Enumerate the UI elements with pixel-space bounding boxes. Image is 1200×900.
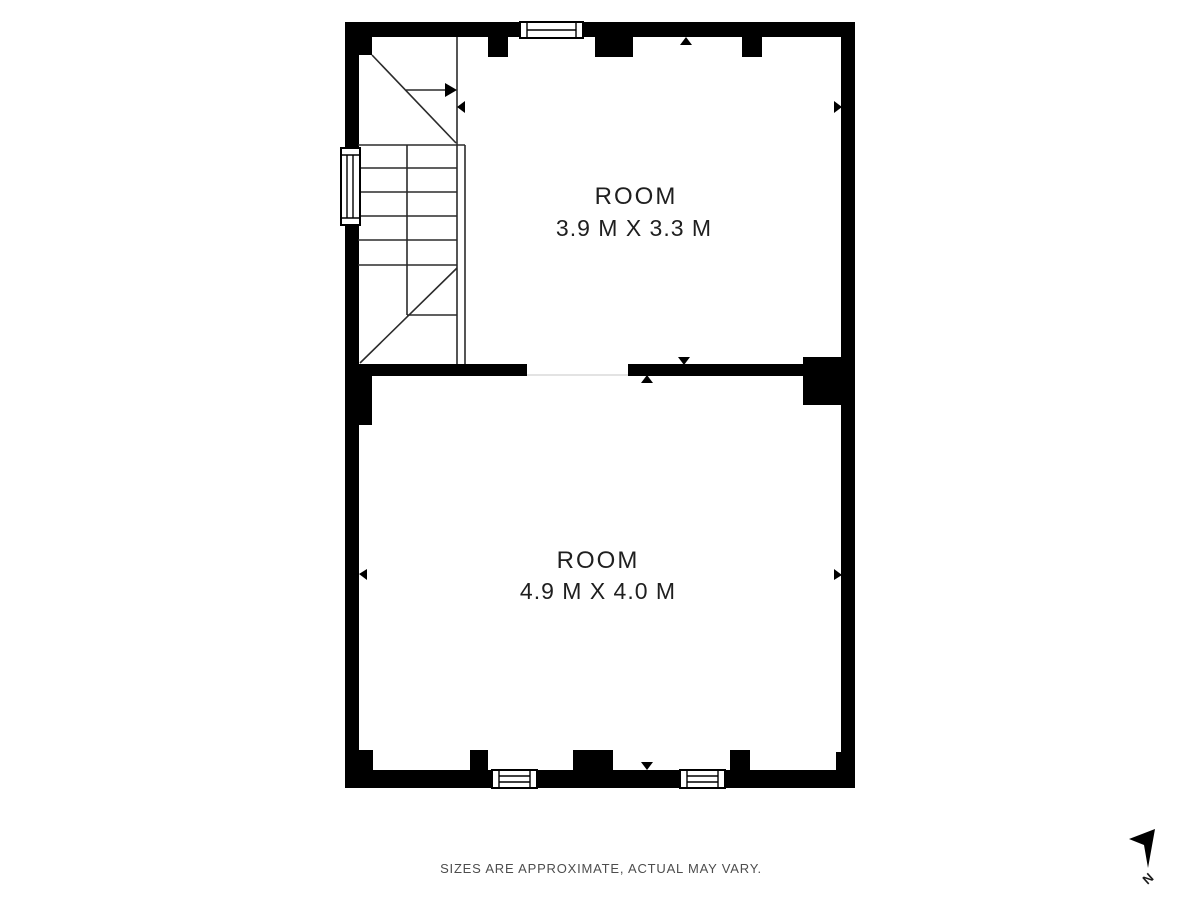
pier-top-left-corner — [359, 22, 372, 55]
staircase — [358, 37, 465, 364]
dimension-arrow-right-icon — [834, 569, 842, 580]
walls — [345, 22, 855, 788]
room-bottom-name: ROOM — [557, 547, 640, 574]
dimension-arrow-right-icon — [834, 101, 842, 113]
stair-direction-arrowhead-icon — [445, 83, 457, 97]
wall-divider-left-segment — [359, 364, 527, 376]
dimension-markers — [359, 37, 842, 770]
room-top-name: ROOM — [595, 183, 678, 210]
north-arrow: N — [1129, 829, 1156, 887]
pier-bottom-1 — [470, 750, 488, 770]
disclaimer-text: SIZES ARE APPROXIMATE, ACTUAL MAY VARY. — [440, 861, 762, 876]
wall-divider-right-segment — [628, 364, 803, 376]
pier-bottom-left — [359, 750, 373, 770]
dimension-arrow-left-icon — [457, 101, 465, 113]
wall-divider-right-pier — [803, 357, 855, 405]
window-left — [341, 148, 360, 225]
room-bottom-dimensions: 4.9 M X 4.0 M — [520, 578, 676, 604]
pier-top-3 — [742, 37, 762, 57]
pier-left-mid — [359, 364, 372, 425]
dimension-arrow-down-icon — [641, 762, 653, 770]
wall-left — [345, 22, 359, 788]
north-arrow-icon — [1129, 829, 1155, 868]
dimension-arrow-up-icon — [641, 375, 653, 383]
dimension-arrow-down-icon — [678, 357, 690, 365]
window-bottom-right — [680, 770, 725, 788]
pier-bottom-3 — [730, 750, 750, 770]
room-bottom-label: ROOM 4.9 M X 4.0 M — [520, 547, 676, 604]
window-top — [520, 22, 583, 38]
dimension-arrow-left-icon — [359, 569, 367, 580]
north-label: N — [1139, 870, 1156, 887]
dimension-arrow-up-icon — [680, 37, 692, 45]
room-top-dimensions: 3.9 M X 3.3 M — [556, 215, 712, 241]
windows — [341, 22, 725, 788]
room-top-label: ROOM 3.9 M X 3.3 M — [556, 183, 712, 241]
pier-bottom-right-step — [836, 752, 841, 770]
window-bottom-left — [492, 770, 537, 788]
pier-top-2 — [595, 37, 633, 57]
wall-bottom — [345, 770, 855, 788]
pier-bottom-2 — [573, 750, 613, 770]
wall-top — [345, 22, 855, 37]
pier-top-1 — [488, 37, 508, 57]
floor-plan-canvas: ROOM 3.9 M X 3.3 M ROOM 4.9 M X 4.0 M SI… — [0, 0, 1200, 900]
floor-plan-page: ROOM 3.9 M X 3.3 M ROOM 4.9 M X 4.0 M SI… — [0, 0, 1200, 900]
stair-break-diagonal — [372, 55, 456, 143]
